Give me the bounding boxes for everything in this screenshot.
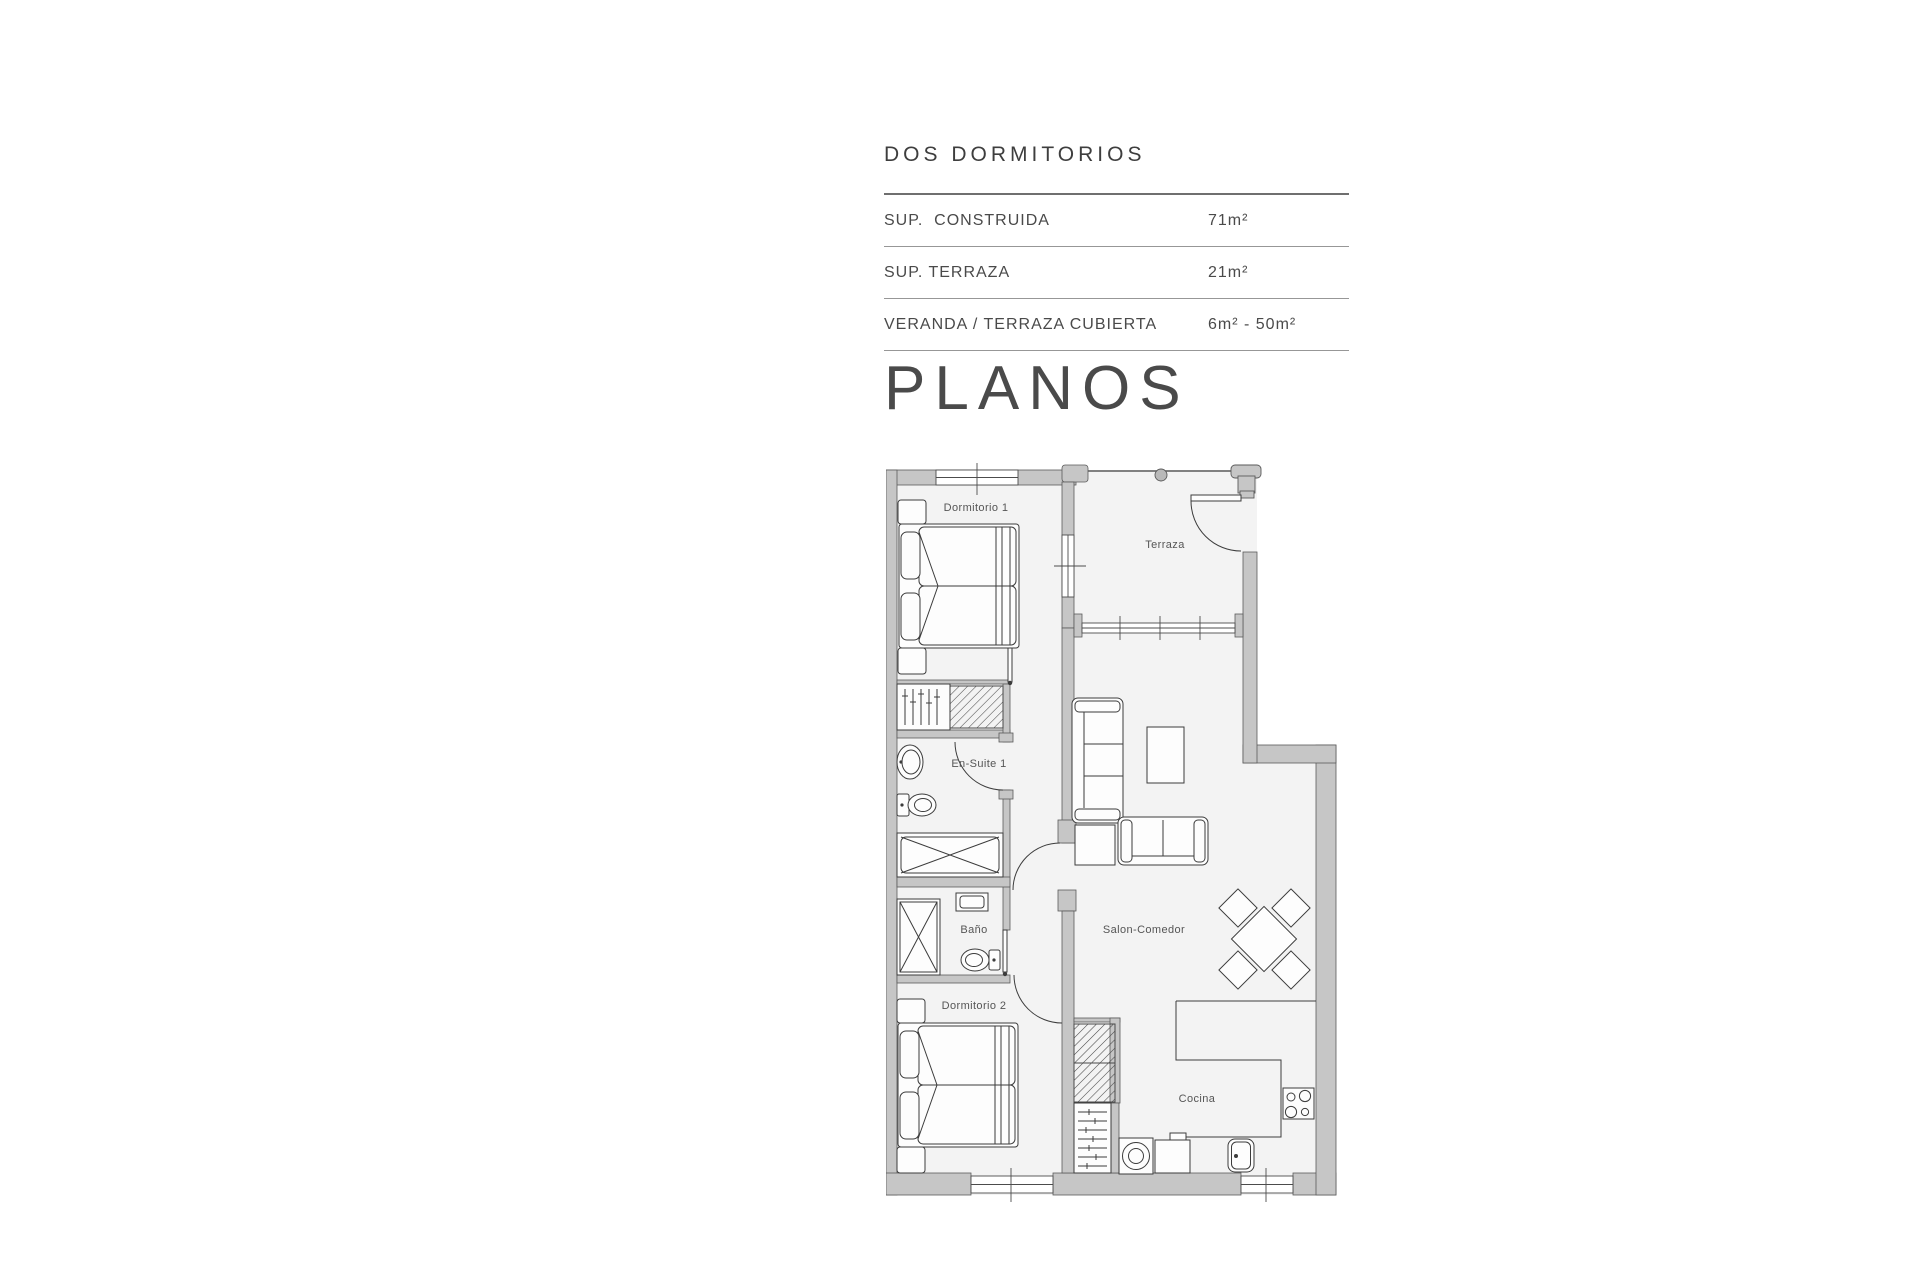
parapet-post [1155,469,1167,481]
room-label-bano: Baño [960,924,987,936]
floor-plan: Dormitorio 1 Terraza En-Suite 1 Baño Sal… [886,462,1358,1218]
kitchen-sink [1228,1139,1254,1172]
table-row: VERANDA / TERRAZA CUBIERTA 6m² - 50m² [884,299,1349,351]
sink [897,745,923,779]
row-value: 71m² [1208,212,1248,230]
bed-dormitorio-2 [897,999,1018,1173]
washing-machine [1119,1138,1153,1174]
table-row: SUP. TERRAZA 21m² [884,247,1349,299]
row-label: SUP. TERRAZA [884,264,1208,282]
bed-dormitorio-1 [898,500,1019,674]
wardrobe-dormitorio-1 [897,684,950,730]
wardrobe-dormitorio-2 [1074,1103,1111,1173]
toilet [961,949,1000,971]
bathtub [897,833,1003,877]
room-label-cocina: Cocina [1179,1093,1216,1105]
shaft-hatch [950,686,1003,728]
shaft-hatch [1074,1024,1115,1063]
shaft-hatch [1074,1063,1115,1102]
floor-plan-container: Dormitorio 1 Terraza En-Suite 1 Baño Sal… [886,462,1358,1218]
section-heading: PLANOS [884,356,1190,422]
sink [956,893,988,911]
sofa-loveseat [1118,817,1208,865]
sofa-three-seater [1072,698,1123,823]
row-label: SUP. CONSTRUIDA [884,212,1208,230]
spec-table: SUP. CONSTRUIDA 71m² SUP. TERRAZA 21m² V… [884,193,1349,351]
room-label-en-suite-1: En-Suite 1 [951,758,1006,770]
row-label: VERANDA / TERRAZA CUBIERTA [884,316,1208,334]
room-label-dormitorio-2: Dormitorio 2 [942,1000,1007,1012]
table-row: SUP. CONSTRUIDA 71m² [884,195,1349,247]
row-value: 6m² - 50m² [1208,316,1296,334]
coffee-table [1147,727,1184,783]
door-bano [1003,930,1007,976]
room-label-terraza: Terraza [1145,539,1185,551]
shower [897,899,940,975]
corner-table [1075,825,1115,865]
row-value: 21m² [1208,264,1248,282]
page-title: DOS DORMITORIOS [884,143,1145,167]
toilet [897,794,936,816]
room-label-salon-comedor: Salon-Comedor [1103,924,1185,936]
cooktop [1283,1088,1314,1119]
room-label-dormitorio-1: Dormitorio 1 [944,502,1009,514]
